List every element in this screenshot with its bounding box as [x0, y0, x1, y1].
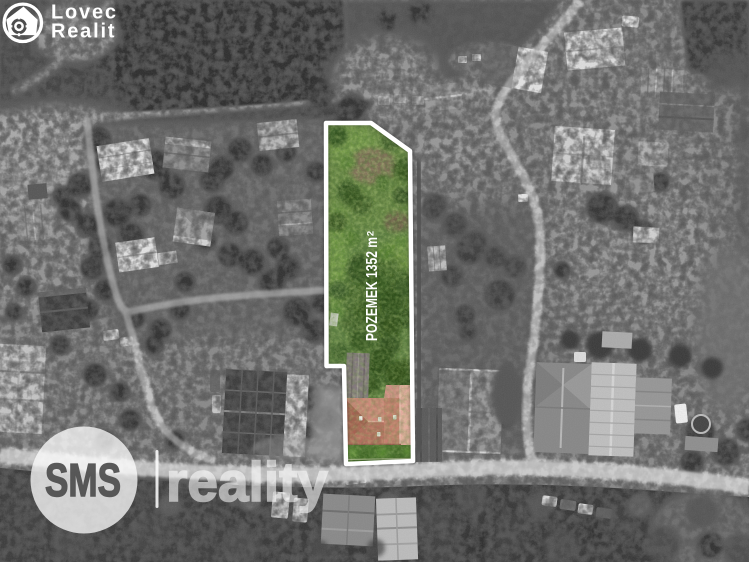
svg-text:2: 2 — [366, 231, 377, 236]
svg-text:POZEMEK 1352 m: POZEMEK 1352 m — [364, 237, 381, 341]
svg-text:SMS: SMS — [45, 454, 121, 506]
svg-text:Realit: Realit — [51, 21, 116, 43]
svg-text:reality: reality — [166, 450, 328, 513]
